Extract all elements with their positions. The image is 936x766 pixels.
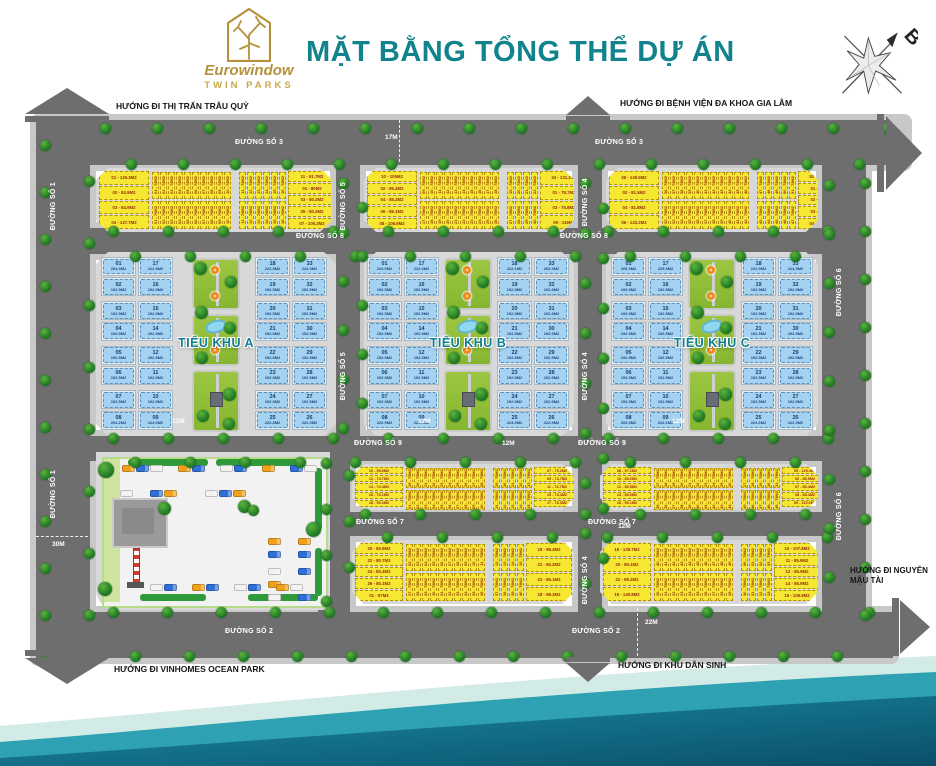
tree-icon [448, 352, 460, 364]
lot-label: 37 - 75M2 [671, 491, 676, 509]
lot-area: 192.5M2 [377, 288, 393, 292]
lot-cell: 06 - 75M2 [438, 544, 445, 572]
lot-label: 20 - 75M2 [445, 206, 450, 224]
lot-area: 192.5M2 [507, 356, 523, 360]
tree-icon [824, 523, 835, 534]
strip-lot-row: 01 - 75M202 - 75M203 - 75M204 - 75M205 -… [405, 489, 532, 510]
lot-cell: 11 - 75M2 [239, 201, 246, 229]
tree-icon [598, 303, 609, 314]
lot-cell: 23 - 65.1M2 [526, 573, 572, 587]
lot-label: 01 - 75M2 [407, 491, 412, 509]
lot-cell: 45 - 75M2 [734, 172, 741, 200]
corner-lot-column: 01 - 125.3M202 - 84.9M203 - 84.9M204 - 1… [99, 171, 149, 229]
lot-cell: 35 - 75M2 [470, 573, 477, 601]
tree-icon [437, 532, 448, 543]
street-label-d7: ĐƯỜNG SỐ 7 [356, 519, 404, 526]
lot-label: 27 - 75M2 [471, 469, 476, 487]
lot-label: 12 - 75M2 [248, 206, 253, 224]
lot-cell: 26 - 75M2 [702, 573, 709, 601]
lot-cell: 28192.5M2 [778, 366, 813, 385]
lot-area: 192.5M2 [377, 312, 393, 316]
block-row: 02192.5M216192.5M2 [367, 277, 439, 296]
tree-icon [625, 457, 636, 468]
site-plan-page: 01204.3M217222.8M202192.5M216192.5M20319… [0, 0, 936, 766]
lot-area: 192.5M2 [148, 376, 164, 380]
lot-label: 37 - 75M2 [671, 176, 676, 194]
lot-label: 24 - 75M2 [687, 578, 692, 596]
tree-icon [860, 418, 871, 429]
lot-cell: 35 - 75M2 [686, 201, 693, 229]
lot-footprint: 08203.3M2 [613, 412, 644, 428]
tree-icon [824, 327, 835, 338]
tree-icon [405, 251, 416, 262]
tree-icon [321, 458, 332, 469]
lot-cell: 15 - 75M2 [468, 172, 475, 200]
lot-area: 192.5M2 [302, 376, 318, 380]
tree-icon [824, 376, 835, 387]
lot-label: 05 - 75M2 [439, 491, 444, 509]
lot-cell: 29 - 75M2 [726, 573, 733, 601]
lot-area: 192.5M2 [265, 312, 281, 316]
lot-area: 192.5M2 [265, 356, 281, 360]
lot-cell: 06 - 75M2 [446, 490, 453, 510]
lot-label: 07 - 75M2 [201, 176, 206, 194]
lot-cell: 15 - 74.4M2 [534, 492, 580, 499]
lot-cell: 09 - 75M2 [470, 490, 477, 510]
block-row: 21192.5M230192.5M2 [497, 322, 569, 341]
lot-label: 46 - 75M2 [750, 491, 755, 509]
lot-footprint: 12192.5M2 [140, 347, 171, 363]
arrow-right-icon [886, 116, 922, 190]
lot-cell: 14 - 74.4M2 [355, 483, 403, 490]
lot-cell: 13 - 75M2 [501, 544, 508, 572]
lot-cell: 48 - 75M2 [765, 490, 772, 510]
lot-cell: 33 - 75M2 [525, 468, 532, 488]
strip-lot-rows: 01 - 75M202 - 75M203 - 75M204 - 75M205 -… [151, 171, 286, 229]
lot-cell: 08 - 75M2 [208, 172, 215, 200]
lot-label: 26 - 75M2 [493, 206, 498, 224]
lot-label: 33 - 75M2 [766, 578, 771, 596]
lot-cell: 15192.5M2 [404, 301, 439, 320]
road [36, 120, 886, 165]
lot-label: 22 - 75M2 [695, 469, 700, 487]
lot-area: 192.5M2 [302, 400, 318, 404]
lot-cell: 47 - 75M2 [710, 544, 717, 572]
lot-label: 29 - 75M2 [494, 469, 499, 487]
strip-lot-row: 20 - 75M221 - 75M222 - 75M223 - 75M224 -… [653, 573, 772, 602]
tree-icon [693, 410, 705, 422]
tree-icon [860, 322, 871, 333]
car-icon [150, 584, 163, 591]
lot-label: 19 - 75M2 [671, 469, 676, 487]
tree-icon [415, 509, 426, 520]
lot-footprint: 19192.5M2 [257, 279, 288, 295]
tree-icon [515, 457, 526, 468]
tree-icon [702, 607, 713, 618]
lot-label: 06 - 75M2 [193, 176, 198, 194]
lot-cell: 29 - 75M2 [493, 468, 500, 488]
car-icon [150, 465, 163, 472]
lot-cell: 41 - 75M2 [702, 172, 709, 200]
lot-cell: 36 - 75M2 [662, 490, 669, 510]
block-row: 08204.2M209224.6M2 [101, 411, 173, 430]
lot-label: 13 - 75M2 [453, 176, 458, 194]
dimension-label-w22: 22M [645, 619, 658, 626]
lot-cell: 11 - 75M2 [493, 490, 500, 510]
lot-area: 192.5M2 [507, 376, 523, 380]
shophouse-block-WA2: 08 - 97.1M210 - 85.2M212 - 85.5M214 - 85… [600, 464, 818, 510]
lot-label: 51 - 75M2 [750, 548, 755, 566]
tree-icon [570, 457, 581, 468]
lot-label: 46 - 75M2 [782, 206, 787, 224]
tree-icon [334, 159, 345, 170]
tree-icon [338, 423, 349, 434]
tree-icon [476, 322, 488, 334]
lot-footprint: 06192.5M2 [369, 368, 400, 384]
lot-area: 192.5M2 [507, 312, 523, 316]
lot-label: 03 - 75M2 [423, 491, 428, 509]
lot-label: 23 - 75M2 [469, 206, 474, 224]
street-label-d5: ĐƯỜNG SỐ 5 [340, 182, 347, 230]
facility-building-roof [122, 508, 154, 534]
lot-cell: 18 - 93.2M2 [355, 500, 403, 507]
lot-footprint: 05192.5M2 [103, 347, 134, 363]
lot-cell: 28 - 75M2 [414, 573, 421, 601]
lot-footprint: 15192.5M2 [140, 303, 171, 319]
lot-label: 37 - 75M2 [703, 206, 708, 224]
lot-cell: 09 - 75M2 [216, 172, 223, 200]
lot-cell: 08 - 75M2 [462, 490, 469, 510]
tree-icon [598, 253, 609, 264]
lot-label: 14 - 75M2 [510, 548, 515, 566]
lot-cell: 46 - 75M2 [749, 490, 756, 510]
lot-label: 06 - 75M2 [447, 491, 452, 509]
lot-area: 192.5M2 [751, 332, 767, 336]
lot-label: 15 - 75M2 [526, 491, 531, 509]
lot-cell: 30 - 75M2 [430, 573, 437, 601]
tree-icon [540, 607, 551, 618]
lot-label: 22 - 75M2 [431, 469, 436, 487]
lot-cell: 20192.5M2 [497, 301, 532, 320]
arrow-right-icon [900, 600, 930, 654]
lot-label: 11 - 75M2 [240, 206, 245, 224]
lot-area: 192.5M2 [111, 376, 127, 380]
lot-area: 192.5M2 [377, 376, 393, 380]
tree-icon [204, 123, 215, 134]
lot-cell: 49 - 75M2 [773, 490, 780, 510]
lot-cell: 19 - 98.4M2 [526, 543, 572, 557]
lot-cell: 04 - 85.2M2 [367, 195, 417, 206]
lot-cell: 22 - 75M2 [430, 468, 437, 488]
lot-cell: 25 - 75M2 [484, 201, 491, 229]
lot-label: 47 - 75M2 [790, 206, 795, 224]
car-icon [219, 490, 232, 497]
tree-icon [383, 226, 394, 237]
lot-cell: 07192.5M2 [101, 390, 136, 409]
tree-icon [713, 226, 724, 237]
lot-cell: 29 - 75M2 [422, 573, 429, 601]
tree-icon [721, 276, 733, 288]
lot-cell: 12 - 75M2 [247, 172, 254, 200]
lot-cell: 27192.5M2 [778, 390, 813, 409]
lot-footprint: 31192.5M2 [536, 303, 567, 319]
block-gap [733, 489, 740, 510]
lot-label: 17 - 75M2 [421, 206, 426, 224]
lot-cell: 23 - 75M2 [678, 573, 685, 601]
lot-footprint: 31192.5M2 [294, 303, 325, 319]
lot-area: 192.5M2 [111, 356, 127, 360]
tree-icon [321, 550, 332, 561]
tree-icon [470, 509, 481, 520]
lot-area: 192.5M2 [751, 288, 767, 292]
lot-cell: 16 - 96.1M2 [603, 500, 651, 507]
lot-label: 19 - 75M2 [437, 206, 442, 224]
lot-footprint: 18222.1M2 [499, 259, 530, 275]
lot-footprint: 20192.5M2 [499, 303, 530, 319]
lot-cell: 31192.5M2 [534, 301, 569, 320]
tree-icon [292, 651, 303, 662]
lot-area: 192.5M2 [658, 356, 674, 360]
lot-cell: 30 - 75M2 [741, 573, 748, 601]
lot-cell: 15 - 75M2 [517, 544, 524, 572]
block-row: 25224.6M226222.9M2 [741, 411, 813, 430]
lot-cell: 51 - 75M2 [749, 544, 756, 572]
lot-label: 11 - 75M2 [240, 176, 245, 194]
lot-label: 49 - 75M2 [774, 176, 779, 194]
lot-cell: 18 - 75M2 [428, 201, 435, 229]
lot-label: 02 - 75M2 [415, 491, 420, 509]
lot-cell: 25 - 75M2 [454, 468, 461, 488]
tree-icon [860, 370, 871, 381]
tree-icon [598, 353, 609, 364]
tree-icon [40, 328, 51, 339]
lot-area: 192.5M2 [414, 356, 430, 360]
lot-label: 25 - 75M2 [719, 469, 724, 487]
block-gap [485, 489, 492, 510]
block-gap [499, 171, 506, 200]
strip-lot-rows: 02 - 75M203 - 75M204 - 75M205 - 75M206 -… [405, 543, 524, 601]
lot-cell: 31 - 75M2 [438, 573, 445, 601]
tree-icon [218, 433, 229, 444]
lot-label: 02 - 75M2 [161, 206, 166, 224]
lot-footprint: 27192.5M2 [780, 392, 811, 408]
lot-cell: 15192.5M2 [648, 301, 683, 320]
lot-label: 23 - 75M2 [439, 469, 444, 487]
lot-cell: 39 - 75M2 [509, 573, 516, 601]
lot-label: 45 - 75M2 [742, 491, 747, 509]
shophouse-block-Y2: 10 - 105M202 - 85.4M204 - 85.2M206 - 85.… [364, 168, 574, 232]
lot-footprint: 11192.5M2 [406, 368, 437, 384]
lot-cell: 15 - 105.9M2 [774, 590, 820, 601]
lot-area: 192.5M2 [111, 332, 127, 336]
tree-icon [240, 251, 251, 262]
tree-icon [100, 123, 111, 134]
lot-cell: 37 - 75M2 [493, 573, 500, 601]
tree-icon [824, 180, 835, 191]
car-icon [220, 465, 233, 472]
lot-footprint: 29192.5M2 [536, 347, 567, 363]
car-icon [164, 584, 177, 591]
lot-label: 43 - 75M2 [758, 206, 763, 224]
lot-footprint: 04192.5M2 [613, 323, 644, 339]
lot-area: 192.5M2 [658, 332, 674, 336]
tree-icon [750, 159, 761, 170]
lot-area: 192.5M2 [302, 312, 318, 316]
lot-cell: 40 - 75M2 [694, 172, 701, 200]
lot-footprint: 32192.5M2 [294, 279, 325, 295]
lot-label: 01 - 75M2 [153, 206, 158, 224]
tree-icon [548, 433, 559, 444]
lot-cell: 24 - 75M2 [476, 201, 483, 229]
car-icon [276, 584, 289, 591]
lot-footprint: 02192.5M2 [369, 279, 400, 295]
lot-area: 204.2M2 [111, 421, 127, 425]
lot-cell: 06192.5M2 [611, 366, 646, 385]
lot-label: 22 - 75M2 [461, 206, 466, 224]
lot-cell: 11192.5M2 [648, 366, 683, 385]
lot-cell: 02 - 75M2 [406, 544, 413, 572]
lot-area: 192.5M2 [302, 288, 318, 292]
lot-label: 36 - 75M2 [663, 176, 668, 194]
lot-cell: 37 - 75M2 [670, 172, 677, 200]
lot-footprint: 04192.5M2 [103, 323, 134, 339]
lot-cell: 10 - 75M2 [428, 172, 435, 200]
arrow-bar [25, 650, 109, 656]
lot-cell: 22 - 75M2 [670, 573, 677, 601]
lot-footprint: 28192.5M2 [780, 368, 811, 384]
lot-cell: 07192.5M2 [367, 390, 402, 409]
master-plan-map: 01204.3M217222.8M202192.5M216192.5M20319… [0, 0, 936, 766]
tree-icon [432, 607, 443, 618]
tree-icon [240, 457, 251, 468]
lot-cell: 24192.5M2 [741, 390, 776, 409]
lot-label: 43 - 75M2 [679, 548, 684, 566]
lot-area: 192.5M2 [788, 356, 804, 360]
lot-cell: 25 - 75M2 [694, 573, 701, 601]
tree-icon [580, 478, 591, 489]
lot-cell: 50 - 75M2 [781, 172, 788, 200]
lot-cell: 32 - 75M2 [757, 573, 764, 601]
lot-label: 36 - 75M2 [695, 206, 700, 224]
lot-cell: 45 - 75M2 [773, 201, 780, 229]
lot-cell: 43 - 75M2 [757, 201, 764, 229]
tree-icon [756, 607, 767, 618]
lot-footprint: 25224.0M2 [499, 412, 530, 428]
tree-icon [163, 226, 174, 237]
lot-cell: 16 - 75M2 [279, 172, 286, 200]
lot-cell: 07 - 75M2 [200, 201, 207, 229]
car-icon [233, 490, 246, 497]
lot-label: 05 - 75M2 [185, 176, 190, 194]
arrow-down-icon [566, 663, 610, 682]
lot-area: 192.5M2 [621, 312, 637, 316]
lot-footprint: 07192.5M2 [369, 392, 400, 408]
lot-cell: 09224.6M2 [138, 411, 173, 430]
lot-cell: 10 - 75M2 [478, 490, 485, 510]
block-row: 02192.5M216192.5M2 [611, 277, 683, 296]
lot-footprint: 18222.8M2 [257, 259, 288, 275]
lot-label: 16 - 75M2 [477, 176, 482, 194]
strip-lot-row: 19 - 75M220 - 75M221 - 75M222 - 75M223 -… [405, 467, 532, 488]
lot-cell: 21 - 75M2 [662, 573, 669, 601]
tree-icon [130, 651, 141, 662]
corner-lot-column: 10 - 95.6M212 - 74.7M214 - 74.4M216 - 74… [355, 467, 403, 507]
block-row: 22192.5M229192.5M2 [497, 346, 569, 365]
lot-footprint: 02192.5M2 [103, 279, 134, 295]
lot-cell: 52 - 75M2 [757, 544, 764, 572]
lot-area: 192.5M2 [377, 332, 393, 336]
lot-label: 21 - 75M2 [453, 206, 458, 224]
tree-icon [382, 532, 393, 543]
lot-cell: 29 - 75M2 [523, 201, 530, 229]
lot-cell: 32 - 75M2 [517, 468, 524, 488]
car-icon [298, 594, 311, 601]
block-row: 20192.5M231192.5M2 [255, 301, 327, 320]
strip-lot-rows: 36 - 75M237 - 75M238 - 75M239 - 75M240 -… [661, 171, 796, 229]
lot-footprint: 03192.5M2 [613, 303, 644, 319]
lot-cell: 29192.5M2 [292, 346, 327, 365]
lot-label: 03 - 75M2 [169, 176, 174, 194]
lot-cell: 06 - 85.1M2 [367, 206, 417, 217]
lot-cell: 15 - 75M2 [271, 201, 278, 229]
lot-footprint: 25222.8M2 [257, 412, 288, 428]
lot-cell: 20 - 80.9M2 [355, 543, 403, 554]
lot-cell: 13 - 75M2 [452, 172, 459, 200]
lot-area: 192.5M2 [265, 332, 281, 336]
lot-label: 48 - 75M2 [719, 548, 724, 566]
lot-cell: 38 - 75M2 [501, 573, 508, 601]
lot-cell: 02192.5M2 [101, 277, 136, 296]
tree-icon [580, 528, 591, 539]
block-row: 23192.5M228192.5M2 [497, 366, 569, 385]
lot-area: 192.5M2 [148, 312, 164, 316]
street-label-d1: ĐƯỜNG SỐ 1 [50, 182, 57, 230]
lot-cell: 34 - 75M2 [678, 201, 685, 229]
block-gap [485, 543, 492, 572]
tree-icon [570, 251, 581, 262]
lot-label: 13 - 75M2 [256, 206, 261, 224]
lot-cell: 32192.5M2 [292, 277, 327, 296]
lot-cell: 06 - 75M2 [192, 201, 199, 229]
lot-label: 44 - 75M2 [727, 176, 732, 194]
compass-north-label: B [900, 25, 918, 51]
lot-label: 17 - 75M2 [655, 469, 660, 487]
lot-footprint: 03192.5M2 [369, 303, 400, 319]
lot-label: 25 - 75M2 [695, 578, 700, 596]
block-row: 19192.5M232192.5M2 [497, 277, 569, 296]
tree-icon [40, 610, 51, 621]
lot-label: 44 - 75M2 [687, 548, 692, 566]
zone-label-c: TIỂU KHU C [674, 336, 751, 350]
lot-label: 08 - 75M2 [209, 206, 214, 224]
lot-cell: 10192.5M2 [138, 390, 173, 409]
lot-cell: 25222.8M2 [255, 411, 290, 430]
lot-cell: 26 - 80.1M2 [355, 578, 403, 589]
lot-cell: 40 - 75M2 [654, 544, 661, 572]
lot-label: 08 - 75M2 [455, 548, 460, 566]
tree-icon [84, 300, 95, 311]
lot-label: 10 - 75M2 [429, 176, 434, 194]
tree-icon [344, 562, 355, 573]
tree-icon [658, 433, 669, 444]
block-gap [749, 171, 756, 200]
tree-icon [378, 607, 389, 618]
tree-icon [360, 123, 371, 134]
lot-label: 31 - 75M2 [750, 578, 755, 596]
lot-label: 43 - 75M2 [719, 176, 724, 194]
lot-cell: 28 - 75M2 [749, 468, 756, 488]
tree-icon [158, 502, 171, 515]
